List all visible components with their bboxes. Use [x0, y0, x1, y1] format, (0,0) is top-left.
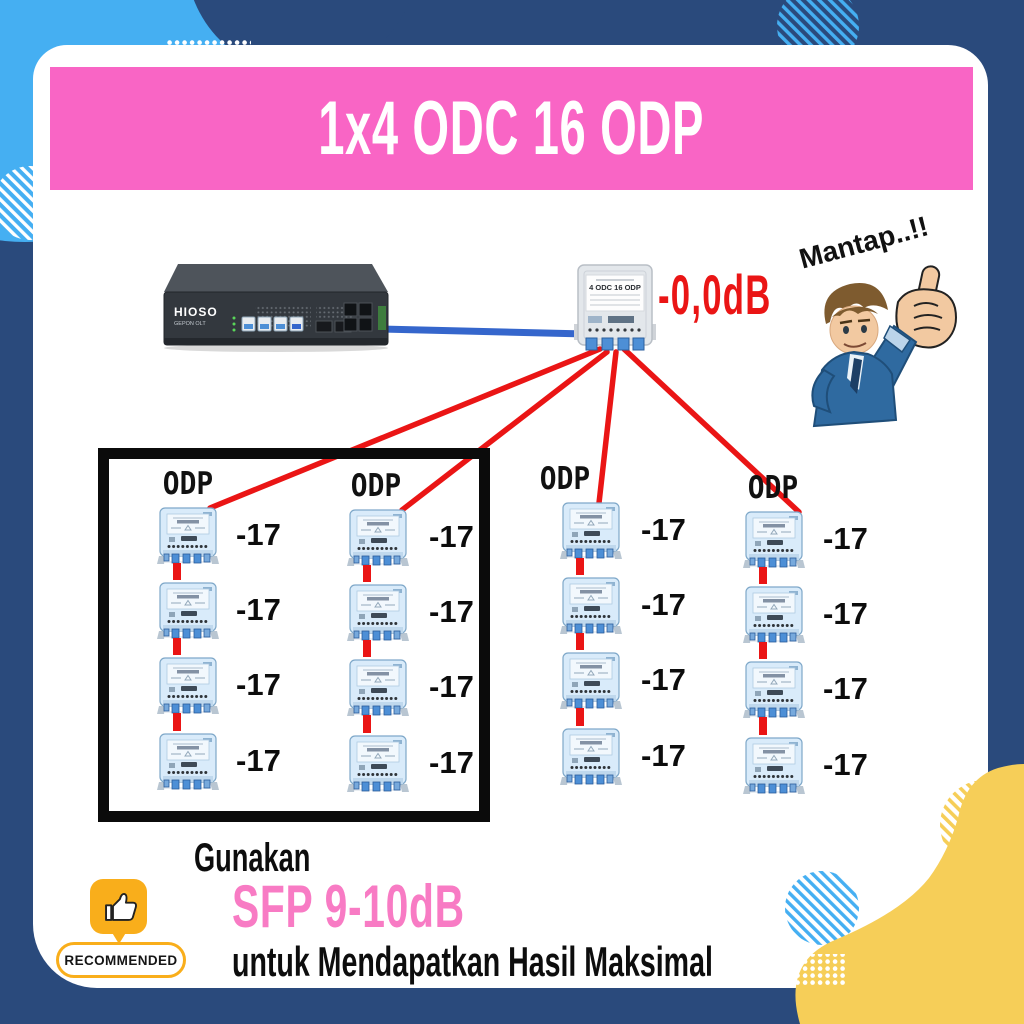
footer-line3: untuk Mendapatkan Hasil Maksimal [232, 938, 713, 986]
thumbs-up-icon [100, 888, 138, 926]
red-dash-connector [576, 708, 584, 726]
recommended-label: RECOMMENDED [64, 953, 177, 968]
odp-loss-label: -17 [823, 596, 868, 632]
odp-box [157, 506, 219, 564]
odp-loss-label: -17 [236, 667, 281, 703]
red-dash-connector [173, 713, 181, 731]
odp-box [743, 660, 805, 718]
odp-header: ODP [134, 466, 242, 502]
pink-banner: 1x4 ODC 16 ODP [50, 67, 973, 190]
odp-loss-label: -17 [429, 669, 474, 705]
odp-box [560, 651, 622, 709]
red-dash-connector [173, 638, 181, 655]
odp-loss-label: -17 [823, 671, 868, 707]
odp-loss-label: -17 [429, 594, 474, 630]
recommended-badge [90, 879, 147, 934]
footer-highlight: SFP 9-10dB [232, 872, 465, 941]
odp-loss-label: -17 [429, 519, 474, 555]
olt-sub-label: GEPON OLT [174, 321, 206, 327]
red-dash-connector [576, 633, 584, 650]
odp-box [347, 658, 409, 716]
red-dash-connector [363, 715, 371, 733]
red-dash-connector [363, 565, 371, 582]
odp-box [743, 510, 805, 568]
red-dash-connector [363, 640, 371, 657]
red-dash-connector [759, 717, 767, 735]
odc-splitter: 4 ODC 16 ODP [572, 262, 658, 354]
odp-loss-label: -17 [429, 745, 474, 781]
odp-loss-label: -17 [823, 521, 868, 557]
odp-loss-label: -17 [641, 512, 686, 548]
odp-box [157, 732, 219, 790]
odp-header: ODP [322, 468, 430, 504]
hioso-logo: HIOSO [174, 305, 218, 319]
odp-loss-label: -17 [641, 587, 686, 623]
odp-box [347, 508, 409, 566]
thumbs-up-man-illustration [802, 258, 964, 428]
odp-box [743, 736, 805, 794]
odp-header: ODP [719, 470, 827, 506]
odp-loss-label: -17 [823, 747, 868, 783]
red-dash-connector [173, 563, 181, 580]
odp-loss-label: -17 [236, 592, 281, 628]
red-dash-connector [576, 558, 584, 575]
banner-title: 1x4 ODC 16 ODP [319, 85, 705, 172]
odp-box [560, 576, 622, 634]
dots-grid-top [167, 40, 257, 70]
odc-label: 4 ODC 16 ODP [589, 283, 641, 292]
odp-box [347, 734, 409, 792]
odp-header: ODP [511, 461, 619, 497]
olt-device: HIOSO GEPON OLT [160, 258, 392, 354]
odp-box [560, 727, 622, 785]
loss-label: -0,0dB [658, 262, 772, 327]
odp-box [560, 501, 622, 559]
odp-box [157, 656, 219, 714]
odp-loss-label: -17 [641, 662, 686, 698]
poster: 1x4 ODC 16 ODP HIOSO GEPON OLT [0, 0, 1024, 1024]
odp-box [743, 585, 805, 643]
recommended-pill: RECOMMENDED [56, 942, 186, 978]
odp-loss-label: -17 [641, 738, 686, 774]
odp-box [157, 581, 219, 639]
red-dash-connector [759, 567, 767, 584]
odp-loss-label: -17 [236, 743, 281, 779]
red-dash-connector [759, 642, 767, 659]
odp-loss-label: -17 [236, 517, 281, 553]
odp-box [347, 583, 409, 641]
